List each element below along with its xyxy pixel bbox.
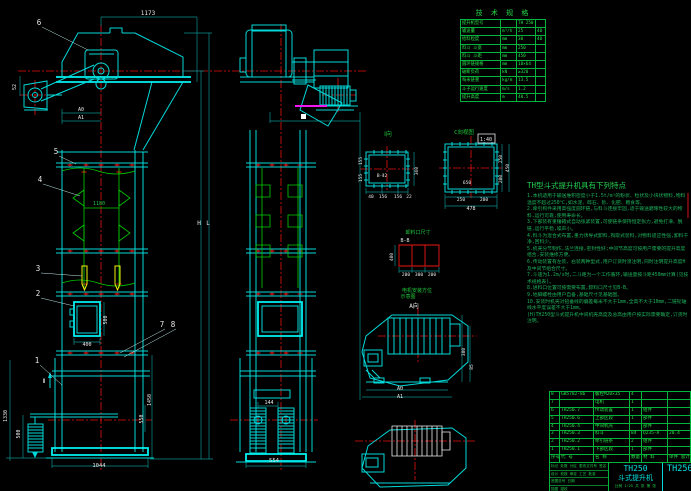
annotation-layer: 1173A0A1521180400500133050014505501044HL… [3,10,511,469]
table-cell: 部件 [642,447,668,454]
table-cell: 料斗 斗距 [461,53,501,60]
table-cell: 2 [630,439,642,446]
dim-label: 250 [498,155,504,163]
table-cell: TH250.3 [560,431,594,438]
spec-table-panel: 技 术 规 格 提升机型号TH 250输送量m³/h2540给料粒度mm3040… [460,8,546,102]
balloon-number: 6 [37,18,42,27]
dim-label: A向 [409,302,419,310]
dim-label: 22 [406,194,412,200]
table-cell: 250 [517,45,536,52]
table-row: 料斗 斗宽mm250 [461,44,545,52]
table-cell: 1.2 [517,86,536,93]
dim-label: 1450 [147,394,153,406]
table-cell: 传动装置 [594,408,630,415]
table-cell: TH250.1 [560,447,594,454]
dim-label: 200 [428,272,436,278]
table-cell: 提升机型号 [461,20,501,27]
table-cell: TH250.2 [560,439,594,446]
text-line: 底图总号 日期 [550,478,608,486]
table-cell: m [501,94,517,101]
takeup-weight [28,414,118,458]
table-cell: mm [501,53,517,60]
chain-and-buckets [62,168,302,288]
table-cell: 中间机壳 [594,424,630,431]
table-cell [536,69,545,76]
spec-table: 提升机型号TH 250输送量m³/h2540给料粒度mm3040料斗 斗宽mm2… [460,19,546,102]
table-cell [668,447,690,454]
table-cell: GB5782-86 [560,392,594,399]
bom-table: 8GB5782-86螺栓M20×3547电机16TH250.7传动装置1组件5T… [549,391,691,463]
text-line: 设计 校核 审定 工艺 批准 [550,471,608,479]
table-row: 提升高度m40.5 [461,93,545,101]
balloon-number: 7 [160,320,165,329]
table-cell: 20.4 [668,431,690,438]
table-cell: 组件 [642,408,668,415]
table-cell: 40.5 [517,94,536,101]
dim-label: 156 [394,194,402,200]
table-cell: mm [501,45,517,52]
table-cell [668,416,690,423]
text-line: 8.进料口位置可按需要布置,卸料口尺寸见B-B。 [527,286,690,293]
dim-label: 478 [466,206,475,212]
text-line: 4.料斗为混合式布置,重力诱导式卸料,掏取式装料,对物料适应性强,卸料干净,回料… [527,234,690,247]
dim-label: 156 [379,194,387,200]
table-row: 4TH250.4中间机壳部件 [550,423,690,431]
table-cell: 40 [536,28,545,35]
table-cell [501,20,517,27]
dim-label: 40 [368,194,374,200]
head-platform [56,77,191,82]
table-cell [536,86,545,93]
table-cell: 料斗 [594,431,630,438]
dim-label: 200 [498,175,504,183]
text-line: 描图 描校 [550,486,608,491]
table-cell [630,424,642,431]
table-row: 料斗 斗距mm450 [461,52,545,60]
title-block-name-area: TH250 斗式提升机 比例 1:25 共 张 第 张 [609,463,663,491]
dim-label: 500 [16,429,22,438]
table-row: 斗子运行速度m/s1.2 [461,85,545,93]
dim-label: 1044 [92,463,106,469]
table-cell [668,424,690,431]
table-cell: 2 [550,439,560,446]
table-cell: 40 [536,36,545,43]
table-row: 给料粒度mm3040 [461,35,545,43]
dim-label: Ⅱ [43,378,46,385]
table-cell: 料斗 斗宽 [461,45,501,52]
table-cell [668,392,690,399]
table-cell: 破断负荷 [461,69,501,76]
alt-drive-sketch [362,426,466,487]
table-cell [536,94,545,101]
table-cell: 1 [630,408,642,415]
table-cell: 给料粒度 [461,36,501,43]
table-cell [560,400,594,407]
table-cell: 1 [630,447,642,454]
dim-label: 155 [358,157,364,165]
text-line: 2.牵引构件采用高强度圆环链,与料斗连接牢固,适于输送磨琢性较大的物料,运行可靠… [527,207,690,220]
dim-label: Ⅰ向 [384,130,392,138]
bom-panel: 8GB5782-86螺栓M20×3547电机16TH250.7传动装置1组件5T… [549,391,691,463]
table-row: 每米链重kg/m13.5 [461,76,545,84]
title-block: 标记 处数 分区 更改文件号 签名 日期设计 校核 审定 工艺 批准底图总号 日… [549,462,691,491]
balloon-leader [124,329,176,357]
dim-label: B-Ⅱ2 [377,173,388,179]
text-line: 标记 处数 分区 更改文件号 签名 日期 [550,463,608,471]
table-cell: kg/m [501,77,517,84]
table-cell: 代 号 [560,455,594,462]
table-cell: TH250.4 [560,424,594,431]
table-cell: mm [501,61,517,68]
front-view [24,28,191,458]
table-cell: 8 [550,392,560,399]
table-cell: TH250.7 [560,408,594,415]
table-cell [668,439,690,446]
title-block-revision-area: 标记 处数 分区 更改文件号 签名 日期设计 校核 审定 工艺 批准底图总号 日… [550,463,609,491]
text-line: 9.地脚螺栓由用户自备,基础尺寸见基础图。 [527,293,690,300]
dim-label: 250 [457,197,465,203]
scale-row: 比例 1:25 共 张 第 张 [609,483,662,489]
text-line: 6.传动装置有左装、右装两种型式,用户订货时须注明,同时注明提升高度H及中间节组… [527,260,690,273]
dim-label: A1 [397,394,403,400]
text-line: (H)TH250型斗式提升机中间机壳高度及总高由用户按实际需要确定,订货时注明。 [527,313,690,326]
dim-label: 200 [402,272,410,278]
table-cell [536,61,545,68]
dim-label: 示意图 [400,293,415,300]
table-row: 5TH250.6上部区段1部件 [550,415,690,423]
table-cell: 18×64 [517,61,536,68]
table-cell: 下部区段 [594,447,630,454]
balloon-leader [42,27,88,50]
table-row: 6TH250.7传动装置1组件 [550,407,690,415]
table-cell: 上部区段 [594,416,630,423]
balloon-number: 2 [36,289,41,298]
view-A-drive-platform [362,315,468,386]
table-cell [536,45,545,52]
table-cell: 输送量 [461,28,501,35]
inspection-door-front [70,302,100,336]
table-cell: 6 [550,408,560,415]
dim-label: B-B [400,238,409,244]
table-cell: 序号 [550,455,560,462]
table-cell: 提升高度 [461,94,501,101]
drawing-number: TH250 [667,463,691,476]
balloon-layer: 65432178 [35,18,176,385]
table-row: 8GB5782-86螺栓M20×354 [550,392,690,399]
table-cell [642,400,668,407]
table-cell: 每米链重 [461,77,501,84]
table-cell: 1 [630,416,642,423]
break-lines [62,168,135,286]
text-line: 3.下部装有重锤箱式自动张紧装置,可使链条保持恒定张力,避免打滑、脱链,运行平稳… [527,220,690,233]
table-cell: 部件 [642,416,668,423]
cad-canvas[interactable]: 1173A0A1521180400500133050014505501044HL… [0,0,691,491]
table-cell: 30 [517,36,536,43]
dim-label: 电机安装方位 [402,287,432,294]
table-cell: 4 [550,424,560,431]
model-number: TH250 [609,463,662,474]
dim-label: 650 [463,180,471,186]
boot-side [236,358,316,462]
table-cell: 1 [630,400,642,407]
table-cell: 5 [550,416,560,423]
table-cell: m/s [501,86,517,93]
table-row: 提升机型号TH 250 [461,20,545,27]
table-cell [536,53,545,60]
dim-label: H [197,220,201,227]
title-block-drawing-no-area: TH250 [663,463,691,491]
balloon-leader [41,298,74,306]
dim-label: 52 [12,84,18,90]
head-housing [246,30,292,77]
dim-label: 卸料口尺寸 [405,229,430,236]
dim-label: 380 [461,348,467,356]
dim-label: 450 [505,164,511,172]
table-cell: 螺栓M20×35 [594,392,630,399]
notes-title: TH型斗式提升机具有下列特点 [527,180,690,191]
dim-label: L [206,220,210,227]
table-row: 7电机1 [550,399,690,407]
table-cell: Q235-A [642,431,668,438]
dim-label: 144 [264,400,273,406]
table-row: 序号代 号名 称数量材 料单件 总计 [550,454,690,462]
dim-label: A1 [78,115,84,121]
balloon-number: 4 [38,175,43,184]
table-cell: 3 [550,431,560,438]
table-cell: 名 称 [594,455,630,462]
motor-side [320,86,356,105]
table-cell: 部件 [642,424,668,431]
table-row: 2TH250.2牵引链条2组件 [550,438,690,446]
dim-label: 400 [389,253,395,261]
table-cell: 1 [550,447,560,454]
table-cell: 材 料 [642,455,668,462]
feed-chute [134,82,183,150]
table-cell: 25 [517,28,536,35]
table-cell [668,400,690,407]
dim-label: 200 [480,197,488,203]
dim-label: 400 [82,342,91,348]
text-line: 1.本机适用于输送堆积密度小于1.5t/m³的粉状、粒状及小块状物料,物料温度不… [527,194,690,207]
table-cell: 4 [630,392,642,399]
table-row: 圆环链规格mm18×64 [461,60,545,68]
balloon-number: 1 [35,356,40,365]
dim-label: 1173 [141,10,156,17]
table-row: 输送量m³/h2540 [461,27,545,35]
table-cell: 电机 [594,400,630,407]
text-line: 10.安装时机壳对铅垂线的偏差每米不大于1mm,全高不大于10mm,二链轮轴线水… [527,300,690,313]
dim-label: 300 [415,272,423,278]
drive-motor-front [24,65,94,110]
table-cell [642,392,668,399]
table-cell: 84 [630,431,642,438]
selection-grip[interactable] [301,114,306,119]
table-cell [536,20,545,27]
table-cell: 450 [517,53,536,60]
table-cell: 数量 [630,455,642,462]
table-cell [668,408,690,415]
notes-lines: 1.本机适用于输送堆积密度小于1.5t/m³的粉状、粒状及小块状物料,物料温度不… [527,194,690,326]
inspection-door-side [258,302,302,336]
balloon-number: 8 [171,320,176,329]
discharge-opening-detail [399,245,439,266]
table-cell: m³/h [501,28,517,35]
table-cell: 牵引链条 [594,439,630,446]
dim-label: 550 [139,414,145,423]
table-cell: kN [501,69,517,76]
table-cell: 圆环链规格 [461,61,501,68]
notes-block: TH型斗式提升机具有下列特点 1.本机适用于输送堆积密度小于1.5t/m³的粉状… [527,180,690,326]
spec-table-title: 技 术 规 格 [460,8,546,18]
gearbox [314,50,348,88]
dim-label: 1330 [3,410,9,422]
table-cell: ≥320 [517,69,536,76]
table-cell: 7 [550,400,560,407]
dim-label: 500 [103,315,109,324]
table-cell: 单件 总计 [668,455,690,462]
table-cell [536,77,545,84]
dim-label: 360 [414,167,420,175]
balloon-number: 3 [36,264,41,273]
dim-label: 554 [269,458,280,464]
dim-label: 155 [358,174,364,182]
casing-walls [55,150,143,452]
dim-label: 1:40 [480,137,492,143]
dim-label: C向视图 [454,128,474,136]
table-row: 1TH250.1下部区段1部件 [550,446,690,454]
table-cell: mm [501,36,517,43]
table-cell: 斗子运行速度 [461,86,501,93]
table-cell: 组件 [642,439,668,446]
side-view [236,25,358,462]
table-cell: 13.5 [517,77,536,84]
dim-label: A0 [397,386,403,392]
table-cell: TH250.6 [560,416,594,423]
product-name: 斗式提升机 [609,474,662,483]
dim-label: A0 [78,107,84,113]
table-row: 3TH250.3料斗84Q235-A20.4 [550,430,690,438]
table-row: 破断负荷kN≥320 [461,68,545,76]
table-cell: TH 250 [517,20,536,27]
dim-label: 85 [469,364,475,370]
dim-label: 1180 [93,201,105,207]
text-line: 5.机壳分节制作,法兰连接,密封性好;中间节高度可按用户需要的提升高度组合,安装… [527,247,690,260]
text-line: 7.斗速为1.2m/s时,二斗距为一个工作循环,输送量按斗距450mm计算(见技… [527,273,690,286]
balloon-number: 5 [54,147,59,156]
